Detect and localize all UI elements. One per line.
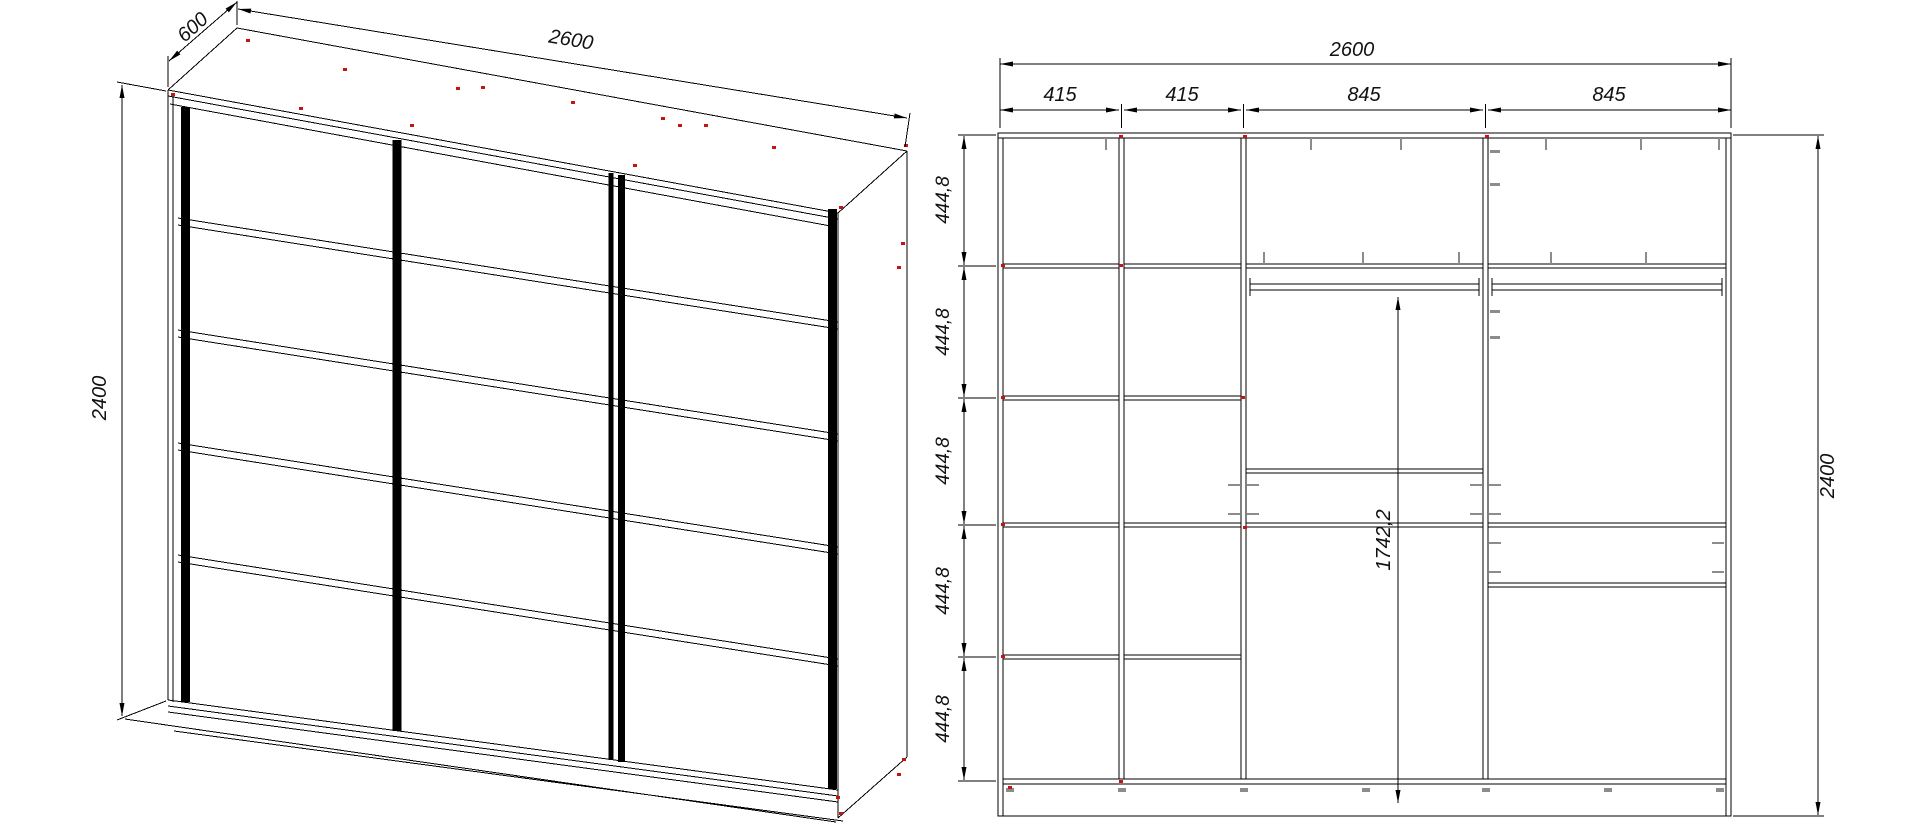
wardrobe-technical-drawing: 600 2600 2400 (0, 0, 1920, 834)
shelf-col3-mid-lower (1246, 523, 1483, 527)
column-2-label: 415 (1165, 84, 1199, 106)
drill-mark (299, 107, 303, 110)
dimension-height-2400-3d: 2400 (89, 82, 166, 720)
row-2-label: 444,8 (933, 308, 954, 356)
drill-mark (1243, 135, 1247, 138)
panel-tick (1645, 252, 1647, 264)
door-bar-1-bottom (178, 225, 838, 329)
shelf-pin (1489, 571, 1501, 573)
bottom-track-line-1 (168, 706, 838, 796)
total-height-label: 2400 (1817, 454, 1839, 500)
dimension-columns: 415 415 845 845 (1000, 84, 1731, 128)
shelf-col1-row2 (1003, 396, 1119, 400)
shelf-col2-row2 (1124, 396, 1241, 400)
panel-tick (1400, 138, 1402, 150)
drill-mark (1119, 780, 1123, 783)
panel-tick (1545, 138, 1547, 150)
floor-line (125, 719, 836, 822)
shelf-pin (1489, 484, 1501, 486)
shelf-col2-row3 (1124, 523, 1241, 527)
base-plinth (125, 700, 843, 822)
shelf-col4-mid-upper (1488, 523, 1726, 527)
drill-mark (1485, 135, 1489, 138)
foot-mark (1716, 788, 1724, 792)
door-stiles (186, 107, 833, 789)
shelf-pin (1470, 484, 1482, 486)
drill-mark (410, 124, 414, 127)
foot-mark (1362, 788, 1370, 792)
drill-mark (571, 101, 575, 104)
dimension-depth-600: 600 (168, 1, 237, 87)
plinth-bottom-edge (174, 731, 843, 821)
wardrobe-front-section-view: 2600 415 415 845 845 (933, 39, 1839, 816)
shelf-col3-top (1246, 264, 1483, 268)
top-front-edge (168, 90, 838, 213)
drill-mark (897, 773, 901, 776)
drill-mark (1001, 655, 1005, 658)
drill-mark (633, 164, 637, 167)
bottom-track-line-2 (168, 712, 838, 802)
row-3-label: 444,8 (933, 437, 954, 485)
shelf-col1-row4 (1003, 655, 1119, 659)
column-4-label: 845 (1592, 84, 1626, 106)
drill-mark (343, 68, 347, 71)
row-5-label: 444,8 (933, 695, 954, 743)
dimension-rows: 444,8 444,8 444,8 444,8 444,8 (933, 135, 996, 781)
foot-mark (1482, 788, 1490, 792)
drill-mark (836, 796, 840, 799)
panel-tick (1105, 138, 1107, 150)
drill-mark (1008, 786, 1012, 789)
foot-mark (1118, 788, 1126, 792)
total-width-label: 2600 (1329, 39, 1375, 61)
drill-mark (897, 266, 901, 269)
panel-tick (1310, 138, 1312, 150)
door-bar-3-bottom (178, 450, 838, 554)
side-bottom-edge (838, 757, 907, 818)
door-bar-4-bottom (178, 562, 838, 666)
dimension-hanging-height: 1742,2 (1373, 297, 1398, 803)
shelf-pin (1247, 484, 1259, 486)
carcass (998, 133, 1731, 816)
panel-tick (1263, 252, 1265, 264)
ext-line (117, 82, 166, 91)
top-front-edge-inner (168, 96, 838, 219)
door-bar-2-top (178, 330, 838, 434)
shelf-pin (1228, 513, 1240, 515)
ext-line (117, 701, 166, 720)
screw-mark (1490, 183, 1500, 186)
depth-label: 600 (173, 8, 213, 47)
height-label: 2400 (89, 376, 111, 422)
panel-tick (1718, 138, 1720, 150)
hanging-rod-col4 (1492, 284, 1722, 290)
drill-mark (772, 146, 776, 149)
drill-mark (1001, 264, 1005, 267)
column-3-label: 845 (1347, 84, 1381, 106)
drill-mark (661, 117, 665, 120)
door-bar-4-top (178, 555, 838, 659)
drill-mark (839, 812, 843, 815)
drill-mark (678, 124, 682, 127)
top-right-edge (838, 151, 907, 213)
hardware-marks (1006, 138, 1724, 792)
divider-1 (1119, 138, 1124, 779)
shelf-pin (1489, 542, 1501, 544)
shelves (1003, 264, 1726, 659)
door-bar-1-top (178, 218, 838, 322)
drill-mark (481, 86, 485, 89)
drill-mark (1241, 396, 1245, 399)
width-label: 2600 (546, 25, 595, 54)
drawing-svg: 600 2600 2400 (0, 0, 1920, 834)
screw-mark (1490, 310, 1500, 313)
door-bottom-edge (168, 700, 838, 790)
drill-mark (902, 758, 906, 761)
drill-mark (1001, 523, 1005, 526)
screw-mark (1490, 336, 1500, 339)
drill-mark (704, 124, 708, 127)
panel-tick (1550, 252, 1552, 264)
shelf-col2-row4 (1124, 655, 1241, 659)
panel-tick (1362, 252, 1364, 264)
shelf-pin (1470, 513, 1482, 515)
drill-mark (246, 39, 250, 42)
door-divider-bars (178, 218, 838, 666)
door-bar-3-top (178, 443, 838, 547)
shelf-col2-row1 (1124, 264, 1241, 268)
left-wall (998, 133, 1003, 816)
shelf-col4-top (1488, 264, 1726, 268)
door-bar-2-bottom (178, 337, 838, 441)
shelf-col4-mid-lower (1488, 583, 1726, 587)
row-4-label: 444,8 (933, 567, 954, 615)
hanging-height-label: 1742,2 (1373, 509, 1395, 570)
drill-mark (456, 87, 460, 90)
drill-mark (1119, 135, 1123, 138)
panel-tick (1640, 138, 1642, 150)
shelf-pin (1228, 484, 1240, 486)
wardrobe-3d-view: 600 2600 2400 (89, 1, 910, 822)
shelf-pin (1247, 513, 1259, 515)
right-wall (1726, 133, 1731, 816)
shelf-col1-row1 (1003, 264, 1119, 268)
drill-mark (171, 93, 175, 96)
left-wall-edge (168, 90, 173, 702)
divider-3 (1483, 138, 1488, 779)
door-top-track-line (170, 104, 836, 227)
drill-mark (839, 206, 843, 209)
shelf-pin (1489, 513, 1501, 515)
drill-mark (901, 242, 905, 245)
shelf-col3-mid-upper (1246, 469, 1483, 473)
dimension-width-2600-3d: 2600 (238, 9, 910, 147)
foot-mark (1604, 788, 1612, 792)
drill-mark (1243, 526, 1247, 529)
divider-2 (1241, 138, 1246, 779)
drill-mark (1119, 264, 1123, 267)
screw-mark (1490, 150, 1500, 153)
shelf-col1-row3 (1003, 523, 1119, 527)
drill-mark (1001, 396, 1005, 399)
drill-marks-3d (171, 39, 908, 815)
panel-tick (1458, 252, 1460, 264)
shelf-pin (1712, 542, 1724, 544)
hanging-rod-col3 (1250, 284, 1479, 290)
column-1-label: 415 (1043, 84, 1077, 106)
top-panel (998, 133, 1731, 138)
right-side-panel (838, 151, 907, 818)
dimension-total-height: 2400 (1733, 135, 1839, 816)
foot-mark (1240, 788, 1248, 792)
bottom-panel (1003, 779, 1726, 784)
row-1-label: 444,8 (933, 176, 954, 224)
shelf-pin (1712, 571, 1724, 573)
